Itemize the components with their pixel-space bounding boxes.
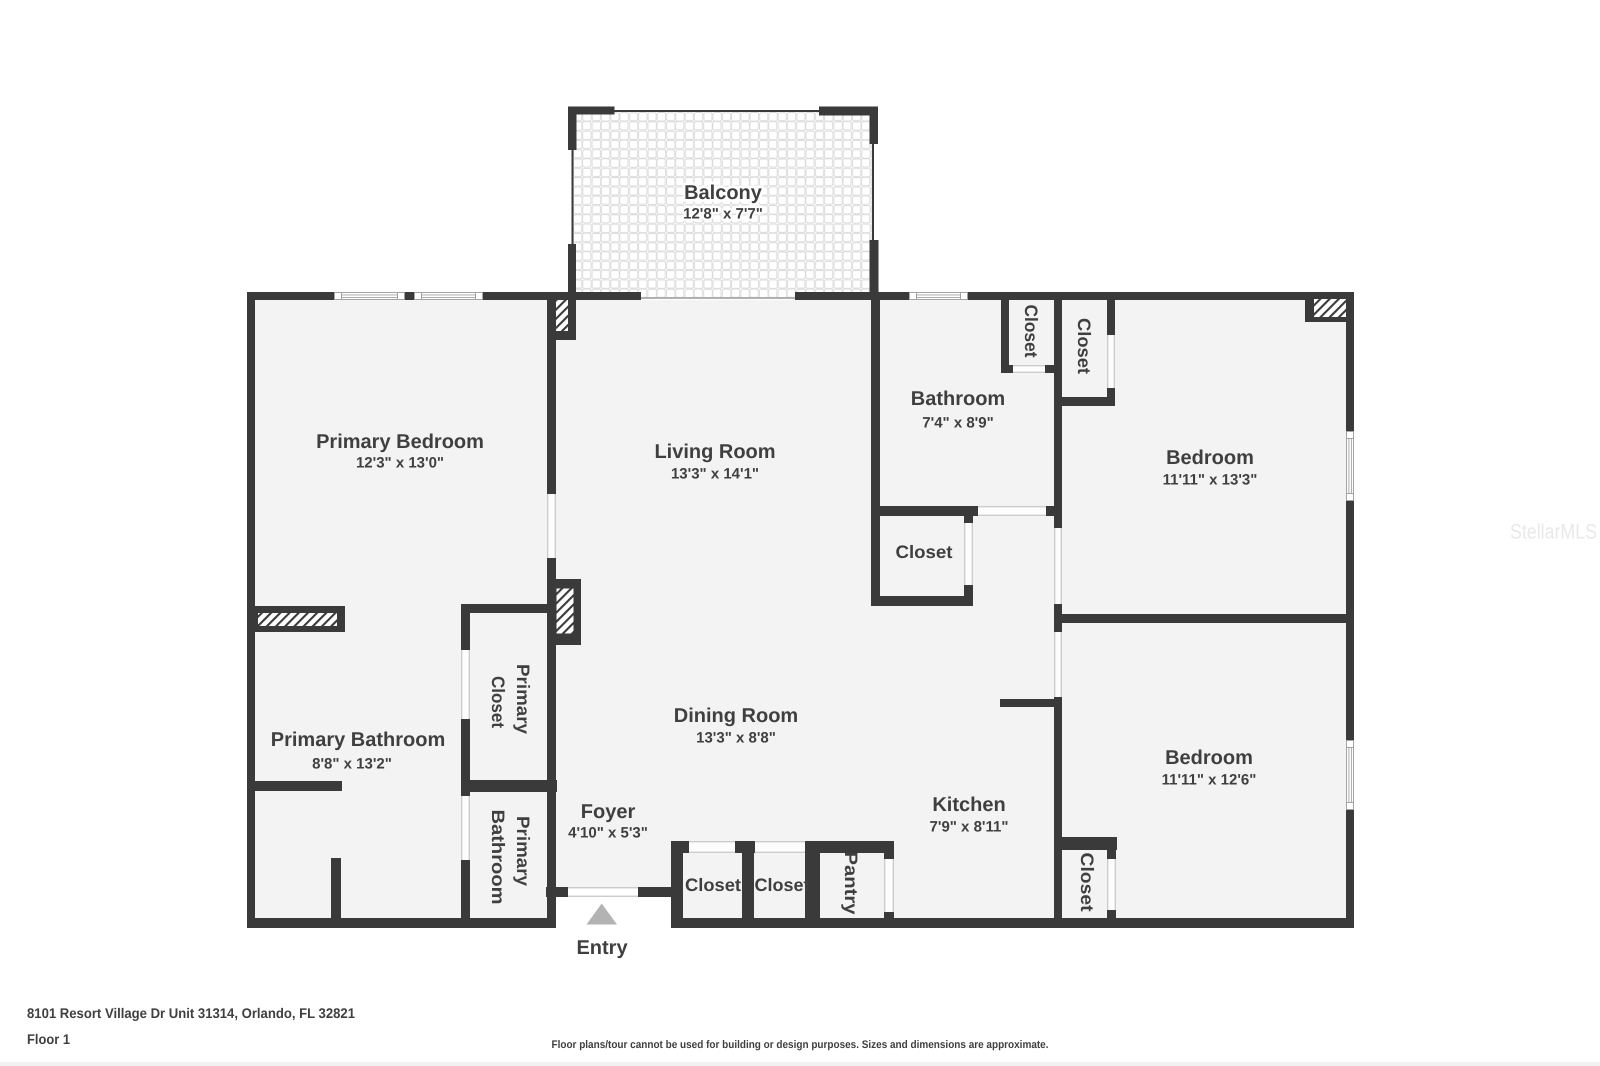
svg-text:4'10" x 5'3": 4'10" x 5'3"	[568, 825, 648, 842]
svg-text:Primary Bedroom: Primary Bedroom	[316, 431, 484, 453]
svg-text:12'8" x 7'7": 12'8" x 7'7"	[683, 206, 763, 223]
svg-text:Closet: Closet	[755, 875, 810, 895]
svg-text:Balcony: Balcony	[684, 182, 763, 204]
svg-text:11'11" x 13'3": 11'11" x 13'3"	[1163, 472, 1258, 489]
svg-text:Floor plans/tour cannot be use: Floor plans/tour cannot be used for buil…	[552, 1039, 1049, 1051]
svg-text:12'3" x 13'0": 12'3" x 13'0"	[356, 455, 444, 472]
svg-text:13'3" x 14'1": 13'3" x 14'1"	[671, 466, 759, 483]
svg-text:Living Room: Living Room	[654, 441, 775, 463]
svg-text:7'4" x 8'9": 7'4" x 8'9"	[922, 415, 993, 432]
svg-text:11'11" x 12'6": 11'11" x 12'6"	[1162, 772, 1257, 789]
svg-text:Closet: Closet	[1074, 318, 1094, 374]
svg-text:Pantry: Pantry	[841, 852, 861, 915]
svg-text:8101 Resort Village Dr Unit 31: 8101 Resort Village Dr Unit 31314, Orlan…	[27, 1005, 355, 1021]
svg-text:Closet: Closet	[896, 542, 953, 562]
svg-text:Primary: Primary	[513, 664, 533, 734]
svg-text:Entry: Entry	[576, 937, 628, 959]
svg-text:Dining Room: Dining Room	[674, 705, 798, 727]
svg-text:13'3" x 8'8": 13'3" x 8'8"	[696, 730, 776, 747]
svg-text:Bedroom: Bedroom	[1165, 747, 1253, 769]
svg-text:Foyer: Foyer	[581, 801, 636, 823]
svg-text:Primary: Primary	[513, 816, 533, 886]
svg-text:Kitchen: Kitchen	[932, 794, 1005, 816]
svg-text:Closet: Closet	[488, 676, 508, 728]
svg-text:Closet: Closet	[1021, 305, 1041, 358]
svg-text:8'8" x 13'2": 8'8" x 13'2"	[312, 756, 392, 773]
svg-text:Bathroom: Bathroom	[911, 388, 1005, 410]
svg-text:Primary Bathroom: Primary Bathroom	[271, 729, 446, 751]
svg-text:Floor 1: Floor 1	[27, 1031, 70, 1047]
svg-text:Bedroom: Bedroom	[1166, 447, 1254, 469]
svg-text:Closet: Closet	[1077, 853, 1097, 912]
svg-text:StellarMLS: StellarMLS	[1510, 521, 1597, 544]
svg-text:Closet: Closet	[685, 875, 741, 895]
svg-text:Bathroom: Bathroom	[488, 810, 508, 905]
svg-text:7'9" x 8'11": 7'9" x 8'11"	[930, 819, 1009, 836]
